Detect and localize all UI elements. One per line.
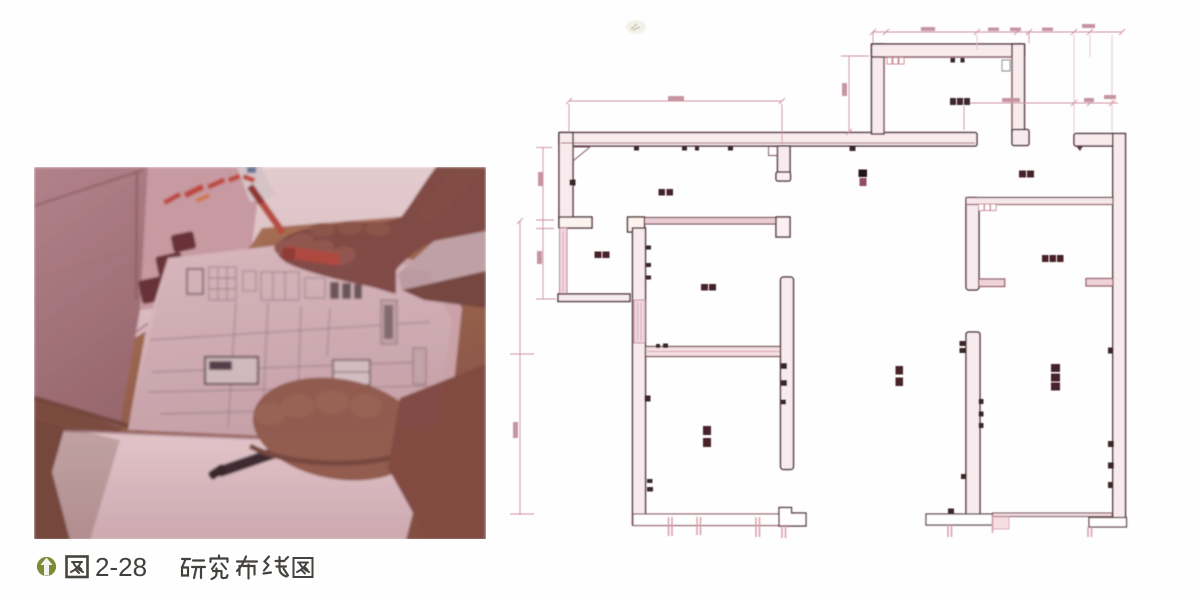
svg-text:2-28: 2-28 [95, 552, 147, 582]
